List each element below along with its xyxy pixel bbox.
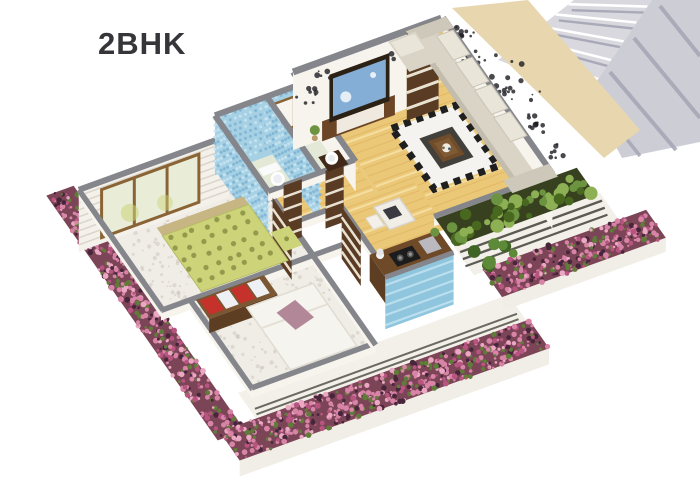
dot	[517, 284, 520, 287]
dot	[170, 298, 172, 300]
dot	[592, 238, 597, 243]
dot	[183, 385, 188, 390]
dot	[199, 374, 202, 377]
dot	[147, 244, 151, 248]
shrub	[584, 187, 597, 200]
dot	[634, 239, 636, 241]
dot	[294, 157, 297, 160]
dot	[244, 149, 247, 152]
dot	[195, 367, 200, 372]
dot	[294, 175, 297, 178]
dot	[288, 422, 294, 428]
dot	[287, 136, 290, 139]
dot	[281, 157, 284, 160]
dot	[229, 441, 235, 447]
dot	[179, 285, 181, 287]
dot	[512, 286, 518, 292]
dot	[290, 141, 293, 144]
dot	[612, 239, 615, 242]
dot	[74, 221, 78, 225]
dot	[287, 154, 290, 157]
dot	[318, 283, 322, 287]
dot	[544, 272, 546, 274]
dot	[297, 162, 300, 165]
dot	[399, 389, 403, 393]
dot	[264, 219, 267, 222]
dot	[536, 271, 540, 275]
dot	[618, 225, 624, 231]
dot	[235, 161, 238, 164]
wall-decal	[518, 78, 523, 83]
dot	[290, 153, 293, 156]
dot	[326, 394, 328, 396]
dot	[214, 136, 217, 139]
dot	[260, 445, 263, 448]
dot	[272, 114, 275, 117]
dot	[627, 245, 629, 247]
dot	[183, 366, 188, 371]
dot	[495, 343, 499, 347]
dot	[223, 179, 226, 182]
dot	[257, 255, 262, 260]
dot	[155, 242, 159, 246]
dot	[232, 181, 235, 184]
dot	[423, 361, 428, 366]
dot	[278, 153, 281, 156]
dot	[350, 395, 356, 401]
dot	[251, 444, 254, 447]
wall-decal	[484, 59, 487, 62]
dot	[425, 373, 429, 377]
dot	[235, 191, 238, 194]
dot	[229, 182, 232, 185]
wall-decal	[295, 96, 298, 99]
dot	[328, 298, 331, 301]
dot	[630, 236, 632, 238]
wall-decal	[318, 70, 320, 72]
dot	[300, 172, 303, 175]
dot	[497, 339, 500, 342]
dot	[275, 137, 278, 140]
dot	[495, 361, 498, 364]
shrub	[545, 192, 551, 198]
dot	[192, 397, 198, 403]
dot	[235, 452, 239, 456]
dot	[370, 72, 376, 78]
dot	[315, 207, 318, 210]
dot	[228, 346, 230, 348]
dot	[401, 369, 405, 373]
wall-decal	[314, 72, 320, 78]
dot	[168, 281, 170, 283]
dot	[517, 343, 521, 347]
dot	[249, 111, 252, 114]
dot	[553, 273, 555, 275]
dot	[281, 151, 284, 154]
palm-plant	[468, 245, 481, 258]
dot	[526, 319, 532, 325]
dot	[142, 330, 145, 333]
dot	[239, 172, 242, 175]
dot	[250, 448, 255, 453]
dot	[508, 274, 511, 277]
dot	[224, 415, 226, 417]
dot	[244, 137, 247, 140]
dot	[61, 213, 64, 216]
wall-decal	[539, 90, 541, 92]
dot	[242, 176, 245, 179]
dot	[257, 186, 260, 189]
dot	[220, 163, 223, 166]
dot	[465, 377, 467, 379]
dot	[633, 224, 637, 228]
dot	[335, 420, 338, 423]
dot	[249, 117, 252, 120]
wall-decal	[528, 125, 532, 129]
dot	[222, 229, 227, 234]
dot	[555, 243, 558, 246]
dot	[157, 195, 173, 211]
dot	[349, 402, 352, 405]
dot	[520, 334, 523, 337]
dot	[494, 357, 497, 360]
dot	[433, 363, 439, 369]
dot	[457, 355, 461, 359]
dot	[258, 419, 260, 421]
dot	[172, 283, 176, 287]
dot	[467, 362, 473, 368]
dot	[303, 171, 306, 174]
dot	[305, 419, 310, 424]
dot	[205, 390, 210, 395]
dot	[315, 189, 318, 192]
dot	[407, 385, 411, 389]
dot	[228, 414, 233, 419]
dot	[285, 431, 288, 434]
dot	[220, 270, 225, 275]
dot	[439, 359, 445, 365]
dot	[297, 168, 300, 171]
dot	[170, 359, 172, 361]
dot	[480, 357, 483, 360]
dot	[220, 151, 223, 154]
dot	[348, 386, 354, 392]
dot	[576, 241, 580, 245]
dot	[245, 219, 250, 224]
dot	[312, 414, 314, 416]
dot	[646, 240, 649, 243]
dot	[257, 204, 260, 207]
dot	[620, 221, 624, 225]
dot	[160, 273, 163, 276]
dot	[306, 169, 309, 172]
dot	[148, 269, 151, 272]
shrub	[490, 219, 504, 233]
dot	[513, 271, 518, 276]
wall-decal	[464, 30, 468, 34]
dot	[502, 346, 505, 349]
dot	[260, 203, 263, 206]
dot	[253, 423, 256, 426]
dot	[297, 174, 300, 177]
dot	[350, 384, 352, 386]
dot	[278, 135, 281, 138]
dot	[132, 243, 135, 246]
dot	[271, 422, 275, 426]
dot	[245, 175, 248, 178]
dot	[164, 345, 168, 349]
dot	[266, 448, 269, 451]
wall-decal	[391, 57, 396, 62]
dot	[133, 296, 137, 300]
dot	[276, 438, 280, 442]
dot	[343, 405, 349, 411]
dot	[161, 295, 164, 298]
dot	[311, 407, 316, 412]
dot	[57, 197, 62, 202]
dot	[75, 230, 78, 233]
dot	[188, 365, 193, 370]
dot	[144, 326, 147, 329]
dot	[166, 285, 168, 287]
dot	[464, 342, 467, 345]
wall-decal	[314, 90, 319, 95]
dot	[480, 347, 484, 351]
dot	[141, 268, 144, 271]
dot	[159, 329, 164, 334]
dot	[245, 456, 247, 458]
dot	[214, 390, 219, 395]
dot	[284, 156, 287, 159]
dot	[549, 254, 553, 258]
dot	[312, 202, 315, 205]
dot	[214, 142, 217, 145]
dot	[531, 339, 535, 343]
dot	[265, 141, 268, 144]
dot	[212, 406, 215, 409]
dot	[281, 145, 284, 148]
dot	[326, 426, 331, 431]
dot	[132, 305, 136, 309]
dot	[239, 178, 242, 181]
palm-plant	[483, 256, 496, 269]
dot	[259, 113, 262, 116]
dot	[223, 167, 226, 170]
dot	[624, 228, 626, 230]
dot	[306, 411, 311, 416]
dot	[292, 417, 294, 419]
dot	[232, 151, 235, 154]
dot	[249, 419, 252, 422]
shrub	[491, 193, 503, 205]
dot	[287, 284, 289, 286]
dot	[226, 214, 231, 219]
shrub	[503, 211, 514, 222]
dot	[260, 215, 263, 218]
dot	[627, 228, 630, 231]
dot	[231, 345, 235, 349]
dot	[210, 275, 215, 280]
dot	[217, 158, 220, 161]
dot	[268, 128, 271, 131]
dot	[173, 354, 178, 359]
dot	[278, 129, 281, 132]
dot	[436, 374, 438, 376]
dot	[198, 398, 200, 400]
dot	[638, 216, 644, 222]
dot	[229, 152, 232, 155]
dot	[217, 409, 221, 413]
dot	[235, 167, 238, 170]
dot	[65, 193, 67, 195]
dot	[306, 199, 309, 202]
dot	[371, 392, 375, 396]
dot	[394, 402, 398, 406]
dot	[128, 308, 133, 313]
dot	[239, 133, 242, 136]
dot	[214, 124, 217, 127]
dot	[309, 428, 311, 430]
dot	[527, 336, 532, 341]
dot	[271, 441, 274, 444]
dot	[430, 367, 432, 369]
dot	[275, 429, 279, 433]
dot	[249, 323, 252, 326]
dot	[545, 344, 550, 349]
dot	[511, 332, 516, 337]
dot	[214, 426, 218, 430]
dot	[319, 193, 322, 196]
wall-decal	[532, 94, 534, 96]
dot	[506, 340, 511, 345]
dot	[264, 207, 267, 210]
dot	[259, 342, 261, 344]
dot	[254, 109, 257, 112]
wall-decal	[550, 151, 553, 154]
dot	[249, 141, 252, 144]
dot	[121, 282, 125, 286]
dot	[203, 265, 208, 270]
shrub	[554, 193, 565, 204]
dot	[284, 236, 289, 241]
shrub	[459, 228, 468, 237]
dot	[267, 212, 270, 215]
dot	[260, 241, 265, 246]
dot	[229, 176, 232, 179]
dot	[186, 267, 191, 272]
dot	[397, 385, 401, 389]
dot	[235, 185, 238, 188]
dot	[309, 401, 314, 406]
dot	[496, 279, 500, 283]
dot	[183, 292, 185, 294]
dot	[514, 267, 519, 272]
dot	[232, 193, 235, 196]
dot	[265, 129, 268, 132]
shrub	[484, 219, 490, 225]
dot	[278, 427, 281, 430]
dot	[517, 337, 522, 342]
dot	[629, 241, 634, 246]
dot	[631, 229, 637, 235]
dot	[161, 281, 163, 283]
dot	[235, 179, 238, 182]
dot	[281, 139, 284, 142]
dot	[168, 256, 170, 258]
dot	[107, 281, 111, 285]
dot	[228, 256, 233, 261]
dot	[248, 179, 251, 182]
dot	[259, 119, 262, 122]
dot	[185, 393, 190, 398]
dot	[513, 261, 518, 266]
dot	[155, 317, 158, 320]
dot	[402, 381, 407, 386]
dot	[229, 188, 232, 191]
dot	[286, 405, 292, 411]
dot	[279, 417, 282, 420]
dot	[229, 158, 232, 161]
dot	[268, 110, 271, 113]
shrub	[539, 189, 545, 195]
dot	[110, 266, 114, 270]
dot	[469, 347, 473, 351]
dot	[498, 333, 501, 336]
dot	[103, 249, 107, 253]
dot	[393, 377, 398, 382]
dot	[242, 260, 247, 265]
dot	[640, 223, 645, 228]
dot	[226, 148, 229, 151]
dot	[242, 182, 245, 185]
dot	[239, 184, 242, 187]
wall-decal	[511, 90, 515, 94]
dot	[260, 197, 263, 200]
shrub	[493, 206, 504, 217]
dot	[272, 144, 275, 147]
dot	[229, 164, 232, 167]
dot	[234, 135, 237, 138]
dot	[588, 252, 591, 255]
shrub	[460, 209, 471, 220]
dot	[333, 414, 335, 416]
dot	[254, 127, 257, 130]
dot	[253, 436, 256, 439]
dot	[643, 228, 647, 232]
dot	[422, 388, 428, 394]
dot	[251, 202, 254, 205]
dot	[223, 143, 226, 146]
dot	[290, 171, 293, 174]
dot	[265, 111, 268, 114]
dot	[254, 115, 257, 118]
dot	[137, 239, 141, 243]
dot	[392, 394, 397, 399]
dot	[656, 238, 659, 241]
dot	[161, 265, 165, 269]
dot	[299, 419, 301, 421]
dot	[536, 343, 538, 345]
dot	[303, 189, 306, 192]
dot	[252, 346, 255, 349]
dot	[513, 342, 516, 345]
wall-decal	[540, 123, 545, 128]
dot	[274, 432, 277, 435]
dot	[287, 413, 292, 418]
dot	[214, 130, 217, 133]
dot	[560, 270, 566, 276]
dot	[234, 123, 237, 126]
